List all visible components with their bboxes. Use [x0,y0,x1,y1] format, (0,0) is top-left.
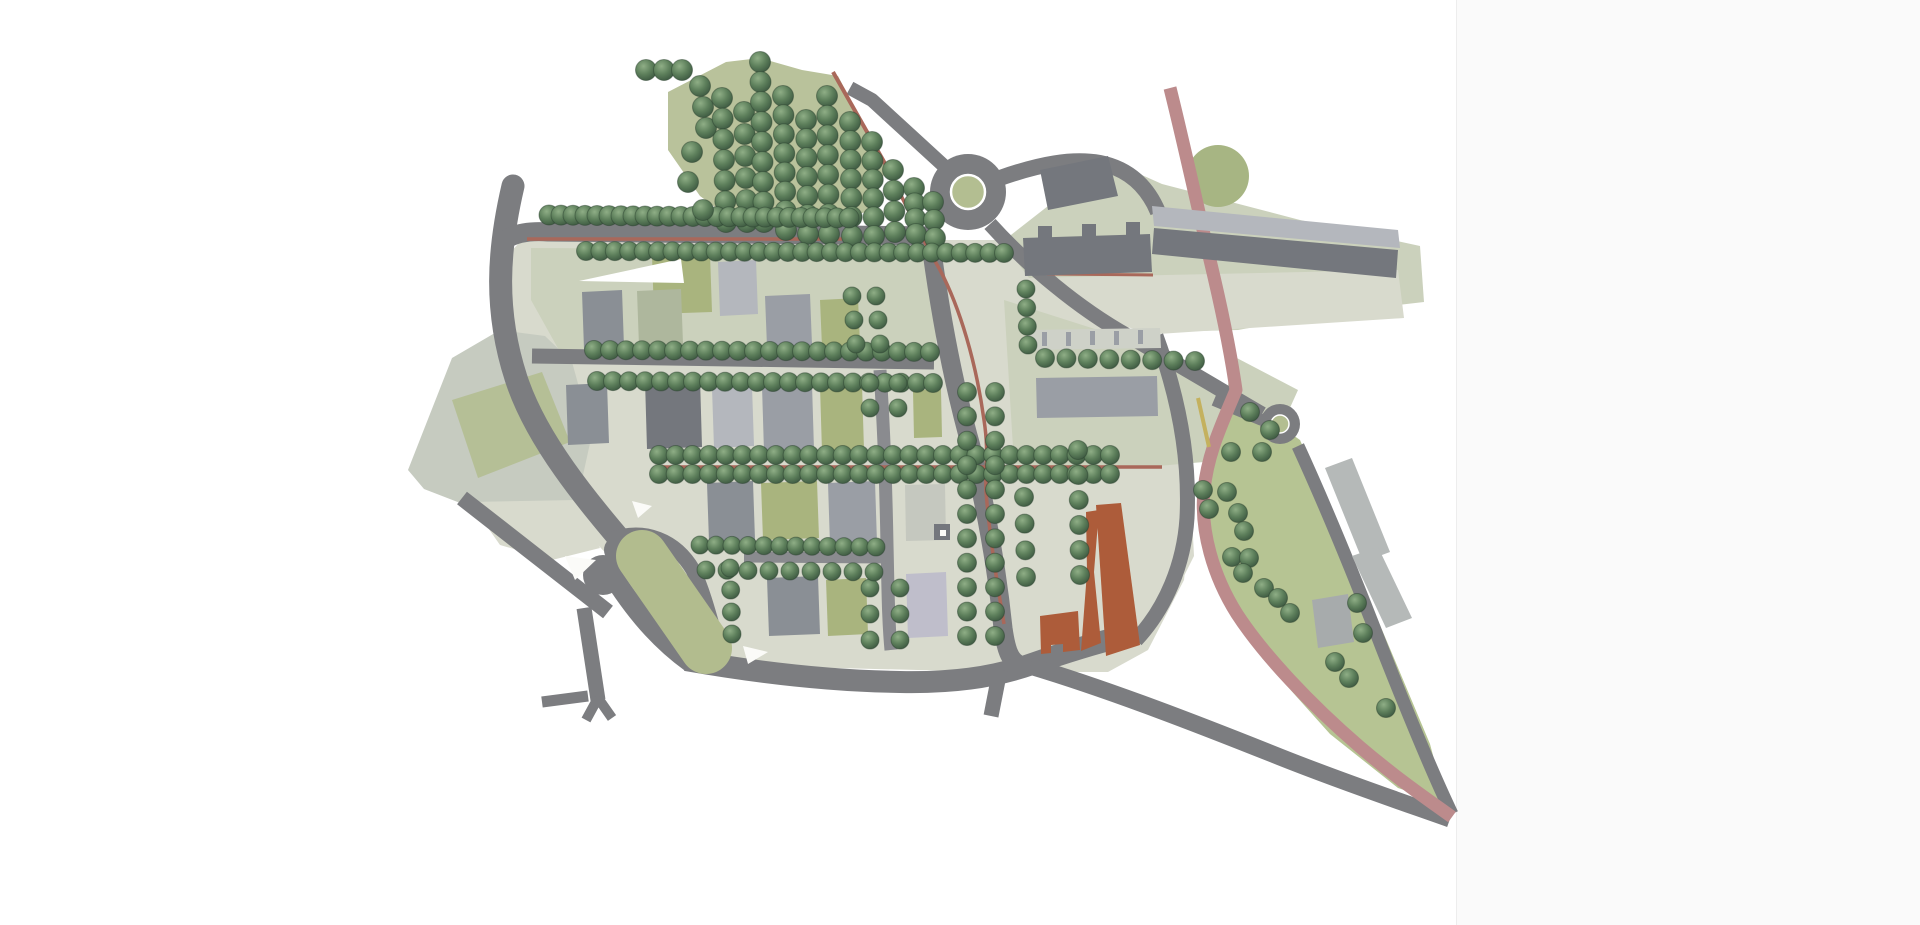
row-a-building-3 [718,260,758,316]
tree-avenue-north-row-18 [933,446,952,465]
tree-single-7 [889,399,907,417]
road-south-stub [584,608,598,700]
tree-bend-col-a-3 [847,335,865,353]
tree-forest-col-11-4 [906,224,927,245]
row-a-building-4 [765,294,812,347]
tree-avenue-north-row-16 [900,446,919,465]
tree-forest-col-10-1 [883,160,904,181]
tree-forest-col-4-5 [752,132,773,153]
ne-roof-notch-2 [1082,224,1096,238]
tree-block-col-b-2 [1069,466,1088,485]
tree-ne-frontage-row-5 [1121,350,1140,369]
tree-avenue-south-row-10 [800,465,819,484]
tree-forest-col-7-3 [817,125,838,146]
tree-lane-row-south-6 [802,562,820,580]
tree-ns-route-east-col-8 [986,553,1005,572]
tree-forest-col-8-1 [840,112,861,133]
tree-forest-col-6-5 [797,186,818,207]
tree-avenue-north-row-5 [716,446,735,465]
tree-lane-row-south-1 [697,561,715,579]
tree-street-mid-north-row-22 [921,343,940,362]
tree-forest-col-5-3 [773,124,794,145]
tree-lane-row-south-8 [844,563,862,581]
tree-block-col-b-1 [1069,441,1088,460]
tree-lane-col-east-1 [891,579,909,597]
tree-avenue-north-row-2 [666,446,685,465]
tree-avenue-north-row-24 [1034,446,1053,465]
tree-avenue-north-row-8 [766,446,785,465]
tree-avenue-south-row-8 [766,465,785,484]
tree-col-730-3 [722,603,740,621]
tree-avenue-north-row-23 [1017,446,1036,465]
tree-forest-col-6-3 [796,148,817,169]
tree-avenue-south-row-16 [900,465,919,484]
tree-avenue-south-row-3 [683,465,702,484]
tree-ns-route-east-col-7 [986,529,1005,548]
tree-ns-route-west-col-6 [958,505,977,524]
tree-forest-col-9-1 [862,132,883,153]
tree-avenue-north-row-14 [867,446,886,465]
tree-single-27 [1200,500,1219,519]
tree-forest-col-6-1 [796,110,817,131]
row-b-building-3 [712,386,754,448]
tree-forest-col-4-4 [751,112,772,133]
tree-avenue-north-row-12 [833,446,852,465]
tree-bend-col-a-1 [843,287,861,305]
tree-avenue-south-row-24 [1034,465,1053,484]
tree-ne-frontage-row-1 [1036,349,1055,368]
tree-forest-col-4-7 [753,172,774,193]
row-b-building-6 [913,389,942,438]
tree-lane-row-north-2 [707,536,725,554]
tree-bend-col-a-2 [845,311,863,329]
tree-lane-row-south-9 [865,563,883,581]
tree-avenue-south-row-15 [883,465,902,484]
ne-roof-notch-1 [1038,226,1052,240]
tree-forest-col-2-2 [712,108,733,129]
tree-ns-route-east-col-3 [986,431,1005,450]
tree-single-15 [1223,548,1242,567]
tree-ne-frontage-row-7 [1164,351,1183,370]
tree-single-2 [678,172,699,193]
tree-avenue-north-row-25 [1050,446,1069,465]
lane-horizontal [744,557,886,558]
tree-avenue-south-row-25 [1050,465,1069,484]
tree-bend-col-b-3 [871,335,889,353]
tree-avenue-south-row-1 [650,465,669,484]
tree-lane-row-south-4 [760,562,778,580]
east-strip-tick-2 [1066,332,1071,346]
tree-lane-col-east-2 [891,605,909,623]
tree-street-mid-south-row-22 [924,374,943,393]
tree-avenue-north-row-11 [817,446,836,465]
tree-forest-col-10-4 [885,222,906,243]
tree-lane-row-south-7 [823,563,841,581]
tree-block-col-a-4 [1017,568,1036,587]
tree-forest-col-5-2 [773,105,794,126]
tree-ns-route-east-col-9 [986,578,1005,597]
tree-single-13 [1229,504,1248,523]
tree-forest-col-7-5 [818,164,839,185]
tree-col-730-4 [723,625,741,643]
tree-bend-col-b-2 [869,311,887,329]
tree-avenue-south-row-18 [933,465,952,484]
masterplan-map [0,0,1920,925]
road-south-stub-prong-b [598,698,612,718]
tree-avenue-south-row-5 [716,465,735,484]
tree-block-col-b-4 [1070,516,1089,535]
tree-forest-col-7-4 [817,145,838,166]
tree-single-21 [1326,653,1345,672]
tree-avenue-south-row-6 [733,465,752,484]
tree-forest-col-7-2 [817,105,838,126]
tree-single-6 [861,399,879,417]
tree-block-col-b-3 [1069,491,1088,510]
tree-ns-route-west-col-10 [958,602,977,621]
tree-avenue-south-row-28 [1101,465,1120,484]
tree-ne-frontage-row-3 [1078,349,1097,368]
tree-ns-route-east-col-10 [986,602,1005,621]
tree-ne-frontage-row-8 [1186,352,1205,371]
tree-single-25 [1348,594,1367,613]
tree-forest-col-5-6 [775,181,796,202]
tree-lane-row-south-5 [781,562,799,580]
tree-ns-route-east-col-1 [986,383,1005,402]
tree-lane-row-north-5 [755,537,773,555]
row-b-building-4 [762,384,814,452]
tree-ns-route-east-col-2 [986,407,1005,426]
tree-ne-frontage-row-4 [1100,350,1119,369]
tree-lane-col-east-3 [891,631,909,649]
tree-block-col-a-3 [1016,541,1035,560]
tree-bend-col-b-1 [867,287,885,305]
tree-lane-row-north-11 [851,538,869,556]
tree-lane-row-north-7 [787,537,805,555]
tree-forest-col-10-2 [883,180,904,201]
tree-forest-col-8-3 [840,150,861,171]
east-slab-building [1036,376,1158,418]
tree-single-1 [682,142,703,163]
tree-ns-route-west-col-11 [958,627,977,646]
tree-avenue-north-row-28 [1101,446,1120,465]
tree-lane-row-north-4 [739,537,757,555]
tree-col-730-2 [722,581,740,599]
tree-forest-col-5-1 [773,86,794,107]
row-a-building-1 [582,290,624,349]
tree-forest-col-2-4 [714,150,735,171]
tree-avenue-north-row-13 [850,446,869,465]
tree-block-col-b-5 [1070,541,1089,560]
row-c-building-2 [761,481,819,540]
tree-avenue-south-row-4 [700,465,719,484]
tree-ne-frontage-row-2 [1057,349,1076,368]
tree-forest-col-2-5 [714,170,735,191]
tree-ns-route-west-col-4 [958,456,977,475]
tree-forest-col-5-4 [774,143,795,164]
masterplan-canvas [0,0,1920,925]
ne-building-2 [1023,234,1152,276]
row-b-building-5 [820,384,864,452]
east-strip-tick-5 [1138,330,1143,344]
tree-single-4 [861,374,879,392]
tree-forest-row-top-3 [672,60,693,81]
tree-single-22 [1340,669,1359,688]
tree-forest-col-6-2 [796,129,817,150]
tree-single-12 [1218,483,1237,502]
row-a-building-2 [637,289,683,346]
ne-roof-notch-3 [1126,222,1140,236]
tree-forest-col-5-5 [774,162,795,183]
tree-single-26 [1194,481,1213,500]
tree-ns-route-east-col-5 [986,480,1005,499]
row-d-building-1 [767,576,820,636]
roundabout-center [951,175,985,209]
road-west-stub [542,696,588,702]
tree-single-11 [1222,443,1241,462]
tree-forest-col-9-2 [862,150,883,171]
tree-ne-frontage-row-6 [1143,351,1162,370]
tree-avenue-north-row-1 [650,446,669,465]
tree-single-8 [1241,403,1260,422]
tree-avenue-south-row-12 [833,465,852,484]
tree-forest-col-7-6 [818,184,839,205]
tree-single-23 [1354,624,1373,643]
tree-single-17 [1234,564,1253,583]
tree-street-top-north-row-26 [839,208,859,228]
tree-ns-route-west-col-1 [958,383,977,402]
tree-forest-col-9-3 [862,169,883,190]
tree-forest-col-2-1 [712,88,733,109]
tree-lane-col-west-1 [861,579,879,597]
tree-forest-col-4-1 [750,52,771,73]
tree-avenue-south-row-14 [867,465,886,484]
tree-ns-route-east-col-11 [986,627,1005,646]
utility-box-dot [940,530,946,536]
tree-ns-route-east-col-6 [986,505,1005,524]
tree-avenue-north-row-4 [700,446,719,465]
tree-lane-col-west-3 [861,631,879,649]
tree-block-col-a-1 [1015,488,1034,507]
row-c-building-3 [828,481,877,545]
tree-forest-col-4-3 [751,92,772,113]
tree-col-730-1 [721,559,739,577]
tree-block-col-b-6 [1071,566,1090,585]
tree-lane-row-north-10 [835,538,853,556]
east-strip-tick-3 [1090,331,1095,345]
tree-single-24 [1377,699,1396,718]
tree-lane-row-north-1 [691,536,709,554]
tree-ns-route-west-col-2 [958,407,977,426]
tree-avenue-south-row-2 [666,465,685,484]
tree-forest-col-8-4 [841,169,862,190]
tree-lane-row-north-6 [771,537,789,555]
tree-forest-col-4-2 [750,72,771,93]
tree-single-14 [1235,522,1254,541]
tree-forest-col-1-1 [690,76,711,97]
tree-ne-col-1 [1017,280,1035,298]
east-strip-tick-1 [1042,332,1047,346]
tree-avenue-south-row-7 [750,465,769,484]
tree-ne-col-2 [1018,299,1036,317]
road-junction-b-stub [991,670,1000,716]
tree-ne-col-4 [1019,336,1037,354]
tree-lane-row-north-12 [867,538,885,556]
tree-avenue-south-row-17 [917,465,936,484]
tree-forest-col-10-3 [884,201,905,222]
tree-lane-row-south-3 [739,562,757,580]
tree-block-col-a-2 [1015,514,1034,533]
tree-forest-col-6-4 [797,167,818,188]
tree-single-10 [1253,443,1272,462]
tree-lane-row-north-9 [819,537,837,555]
east-strip-tick-4 [1114,331,1119,345]
row-b-building-1 [566,383,609,445]
tree-forest-col-8-2 [840,131,861,152]
page: { "page": { "background": "#ffffff", "ri… [0,0,1920,925]
tree-forest-col-1-2 [693,97,714,118]
tree-forest-col-8-5 [841,188,862,209]
tree-ne-col-3 [1018,317,1036,335]
tree-avenue-north-row-7 [750,446,769,465]
tree-avenue-south-row-9 [783,465,802,484]
tree-avenue-north-row-9 [783,446,802,465]
tree-forest-col-9-4 [863,188,884,209]
tree-ns-route-west-col-7 [958,529,977,548]
tree-avenue-north-row-15 [883,446,902,465]
row-d-building-3 [906,572,948,638]
tree-ns-route-west-col-9 [958,578,977,597]
tree-forest-col-9-5 [863,207,884,228]
tree-ns-route-west-col-5 [958,480,977,499]
tree-avenue-south-row-23 [1017,465,1036,484]
tree-lane-row-north-8 [803,537,821,555]
tree-ns-route-west-col-3 [958,431,977,450]
tree-avenue-south-row-11 [817,465,836,484]
tree-street-top-south-row-30 [995,244,1014,263]
row-c-building-1 [707,481,755,542]
tree-ns-route-west-col-8 [958,553,977,572]
tree-single-5 [889,374,907,392]
tree-avenue-north-row-6 [733,446,752,465]
tree-avenue-north-row-17 [917,446,936,465]
tree-avenue-north-row-3 [683,446,702,465]
tree-avenue-south-row-13 [850,465,869,484]
tree-forest-col-7-1 [817,86,838,107]
tree-lane-row-north-3 [723,536,741,554]
tree-single-20 [1281,604,1300,623]
tree-ns-route-east-col-4 [986,456,1005,475]
tree-avenue-north-row-10 [800,446,819,465]
tree-single-9 [1261,421,1280,440]
tree-single-3 [693,200,714,221]
tree-lane-col-west-2 [861,605,879,623]
tree-forest-col-4-6 [752,152,773,173]
tree-forest-col-2-3 [713,129,734,150]
